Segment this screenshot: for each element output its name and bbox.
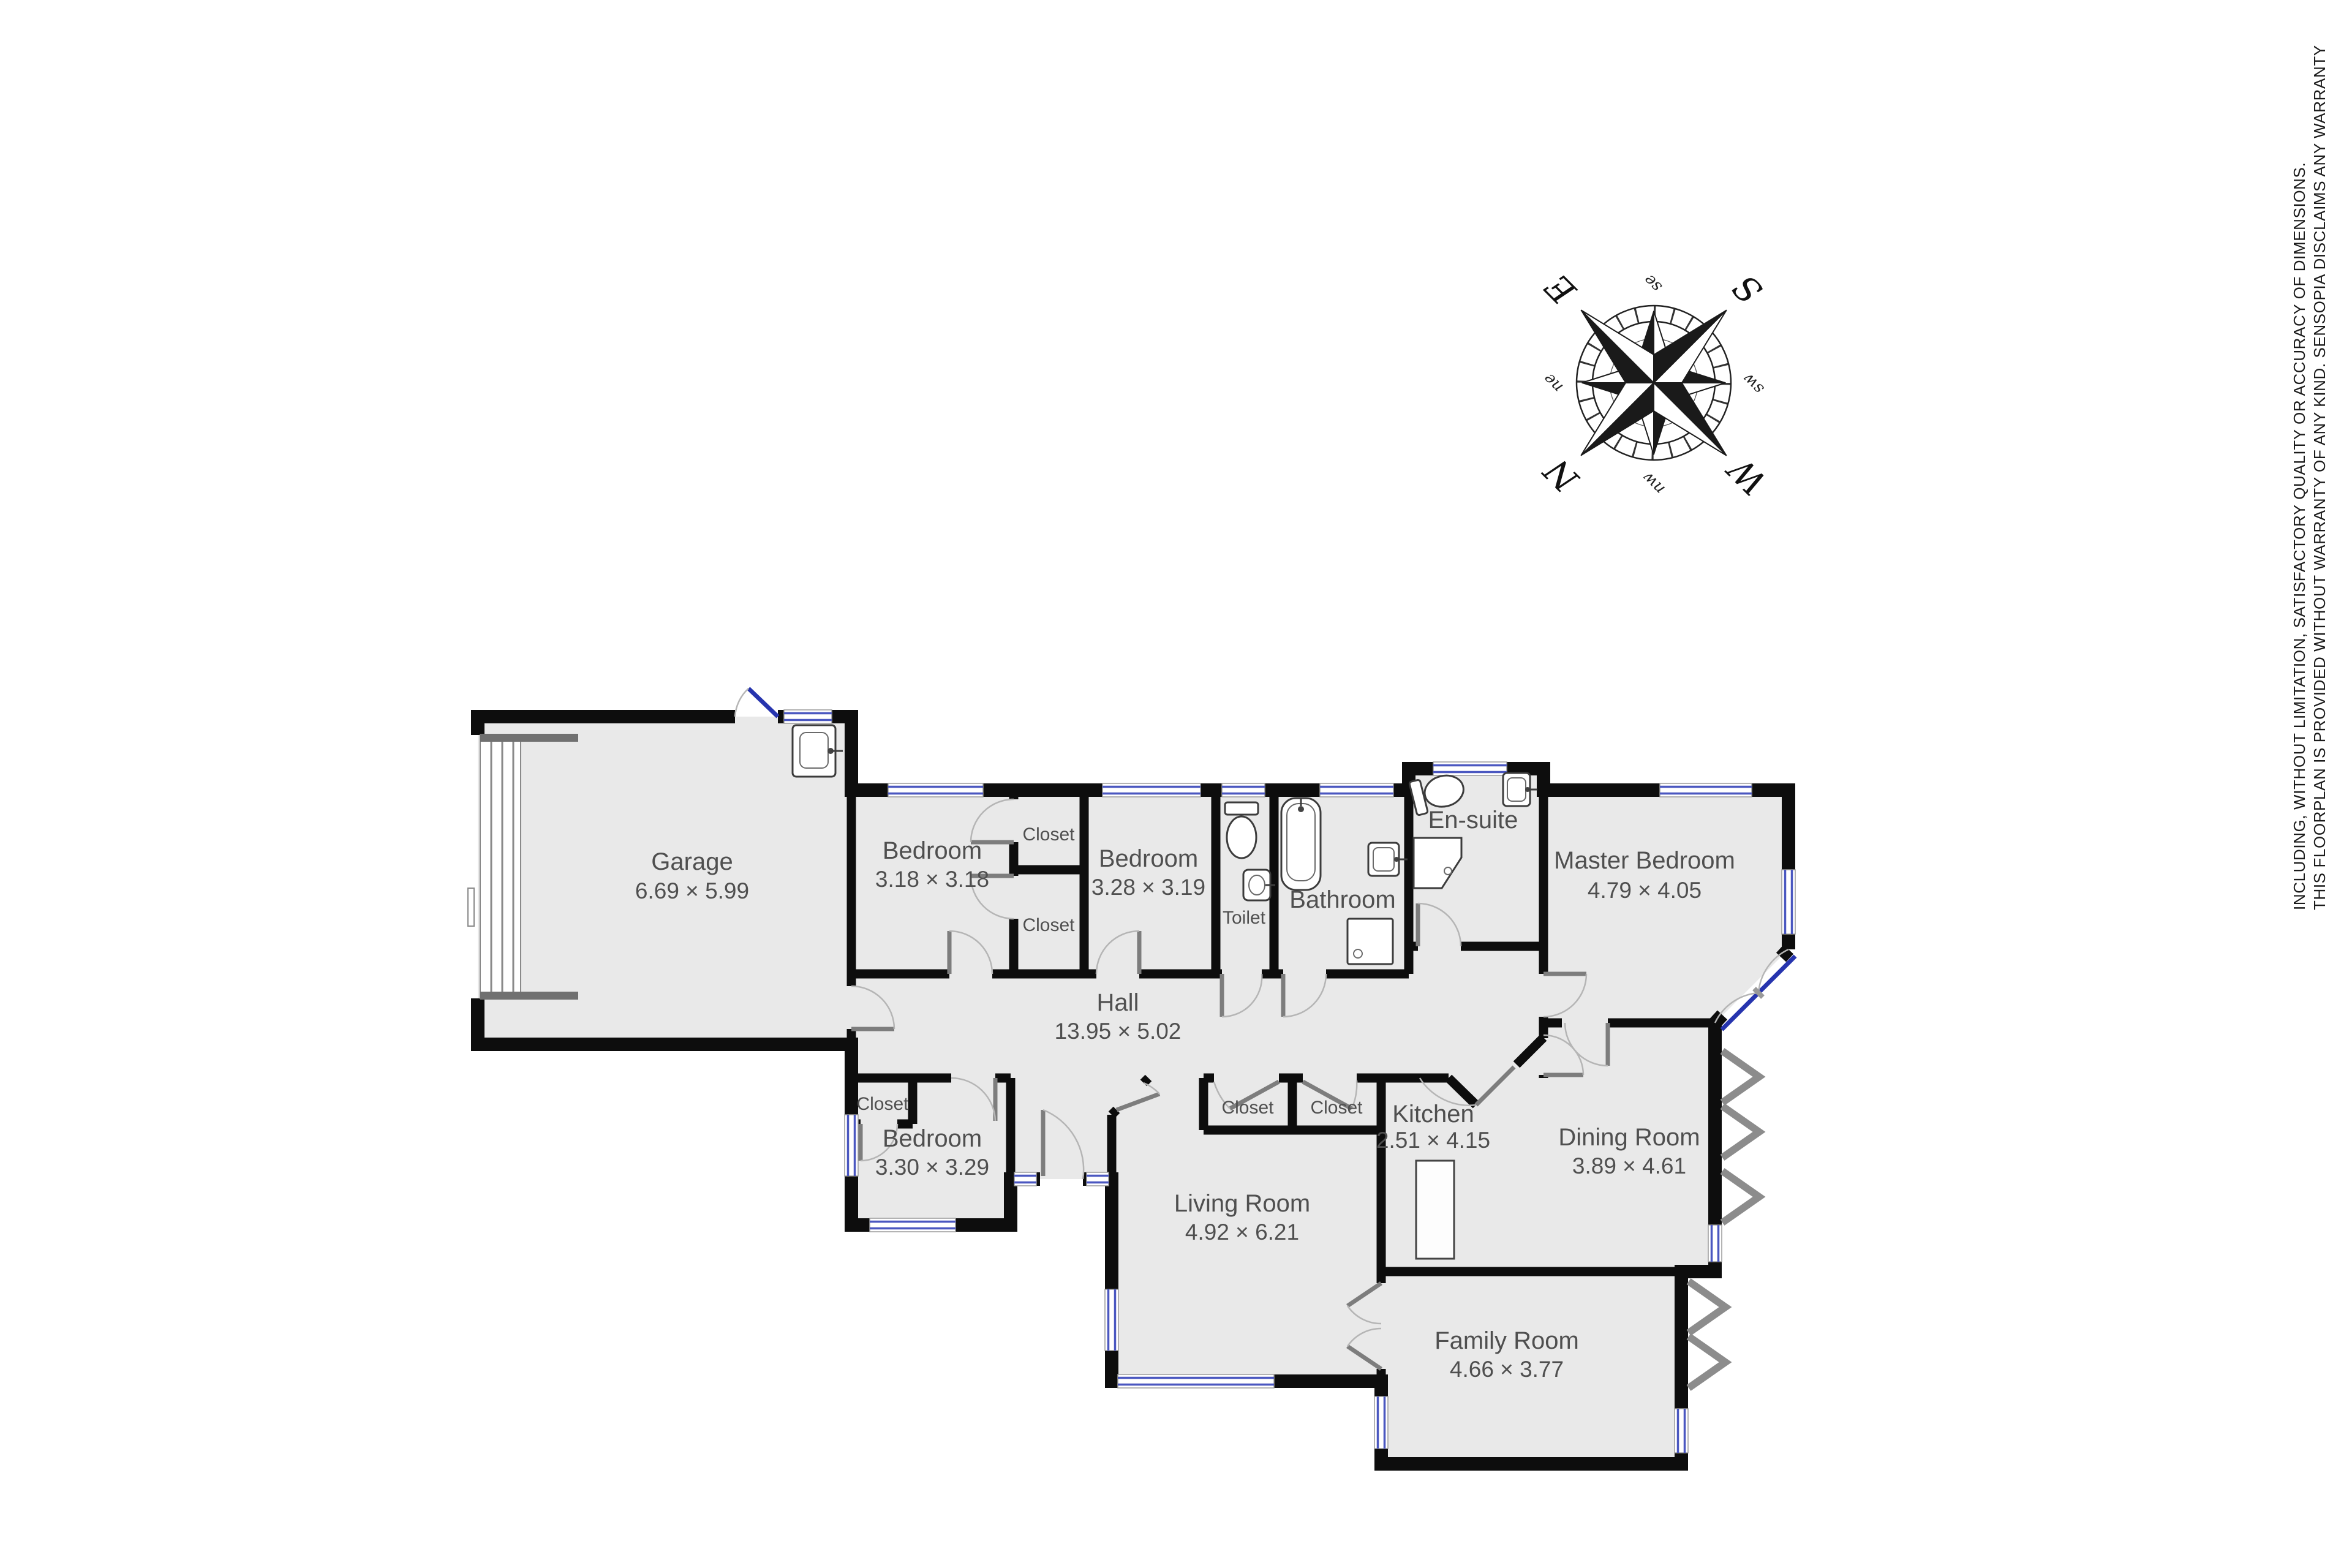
disclaimer-text: THIS FLOORPLAN IS PROVIDED WITHOUT WARRA… xyxy=(2290,92,2330,910)
room-label-bedroom-top: Bedroom xyxy=(883,837,982,864)
window xyxy=(1105,1289,1118,1351)
floorplan: Garage 6.69 × 5.99 Bedroom 3.18 × 3.18 C… xyxy=(466,686,1862,1501)
compass-south-label: S xyxy=(1725,266,1770,311)
window xyxy=(1708,1225,1722,1262)
room-label-garage: Garage xyxy=(651,848,733,875)
bathtub-icon xyxy=(1281,798,1321,890)
floorplan-page: { "disclaimer": { "line1": "THIS FLOORPL… xyxy=(0,0,2352,1568)
window xyxy=(1014,1172,1036,1186)
toilet-icon xyxy=(1225,802,1258,858)
room-dims-kitchen: 2.51 × 4.15 xyxy=(1376,1128,1490,1153)
room-label-living: Living Room xyxy=(1174,1190,1310,1217)
door-garage-exterior xyxy=(735,688,778,717)
room-label-dining: Dining Room xyxy=(1558,1124,1700,1151)
room-dims-dining: 3.89 × 4.61 xyxy=(1572,1153,1686,1178)
room-label-ensuite: En-suite xyxy=(1428,807,1518,834)
room-dims-garage: 6.69 × 5.99 xyxy=(635,878,749,903)
room-label-closet-mid-l: Closet xyxy=(1221,1098,1274,1118)
disclaimer-line-2: INCLUDING, WITHOUT LIMITATION, SATISFACT… xyxy=(2290,92,2310,910)
compass-ne-label: ne xyxy=(1540,369,1567,396)
window xyxy=(870,1218,956,1232)
room-label-hall: Hall xyxy=(1097,989,1139,1016)
floor-footprint xyxy=(478,717,1789,1464)
sink-icon xyxy=(793,725,843,777)
compass-se-label: se xyxy=(1640,271,1666,296)
folding-door-icon xyxy=(1689,1281,1725,1333)
compass-nw-label: nw xyxy=(1639,469,1669,499)
room-dims-bedroom-mid: 3.28 × 3.19 xyxy=(1091,875,1205,900)
folding-door-icon xyxy=(1722,1106,1759,1158)
window xyxy=(1320,783,1393,797)
room-label-closet-b: Closet xyxy=(1022,915,1075,935)
window xyxy=(1433,762,1507,775)
window xyxy=(1660,783,1752,797)
window xyxy=(1675,1409,1688,1453)
compass-rose: N E S W ne se sw nw xyxy=(1501,230,1807,536)
window xyxy=(784,710,832,723)
room-dims-bedroom-bot: 3.30 × 3.29 xyxy=(875,1155,989,1180)
room-dims-master: 4.79 × 4.05 xyxy=(1588,878,1702,903)
room-label-family: Family Room xyxy=(1434,1327,1579,1354)
room-label-bedroom-bot: Bedroom xyxy=(883,1125,982,1152)
room-label-toilet: Toilet xyxy=(1223,908,1266,928)
window xyxy=(1374,1396,1388,1449)
window xyxy=(1782,870,1795,934)
window xyxy=(1102,783,1200,797)
room-label-closet-a: Closet xyxy=(1022,824,1075,845)
sink-icon xyxy=(1243,870,1275,900)
window xyxy=(1087,1172,1109,1186)
compass-north-label: N xyxy=(1536,450,1587,500)
kitchen-island xyxy=(1416,1161,1454,1259)
compass-sw-label: sw xyxy=(1739,369,1767,398)
folding-door-icon xyxy=(1689,1336,1725,1388)
window xyxy=(1222,783,1265,797)
room-label-bathroom: Bathroom xyxy=(1289,886,1395,913)
room-dims-hall: 13.95 × 5.02 xyxy=(1055,1019,1182,1044)
room-dims-bedroom-top: 3.18 × 3.18 xyxy=(875,867,989,892)
shower-icon xyxy=(1347,919,1393,964)
room-label-closet-mid-r: Closet xyxy=(1310,1098,1363,1118)
folding-door-icon xyxy=(1722,1171,1759,1223)
window xyxy=(888,783,983,797)
room-dims-living: 4.92 × 6.21 xyxy=(1185,1219,1299,1245)
room-dims-family: 4.66 × 3.77 xyxy=(1450,1357,1564,1382)
room-label-closet-left: Closet xyxy=(856,1094,909,1114)
compass-west-label: W xyxy=(1719,447,1774,502)
compass-east-label: E xyxy=(1538,266,1585,312)
window xyxy=(1118,1374,1274,1388)
folding-door-icon xyxy=(1722,1051,1759,1102)
window xyxy=(845,1115,858,1176)
room-label-bedroom-mid: Bedroom xyxy=(1099,845,1198,872)
disclaimer-line-1: THIS FLOORPLAN IS PROVIDED WITHOUT WARRA… xyxy=(2310,92,2330,910)
room-label-master: Master Bedroom xyxy=(1554,847,1735,874)
room-label-kitchen: Kitchen xyxy=(1392,1101,1474,1128)
